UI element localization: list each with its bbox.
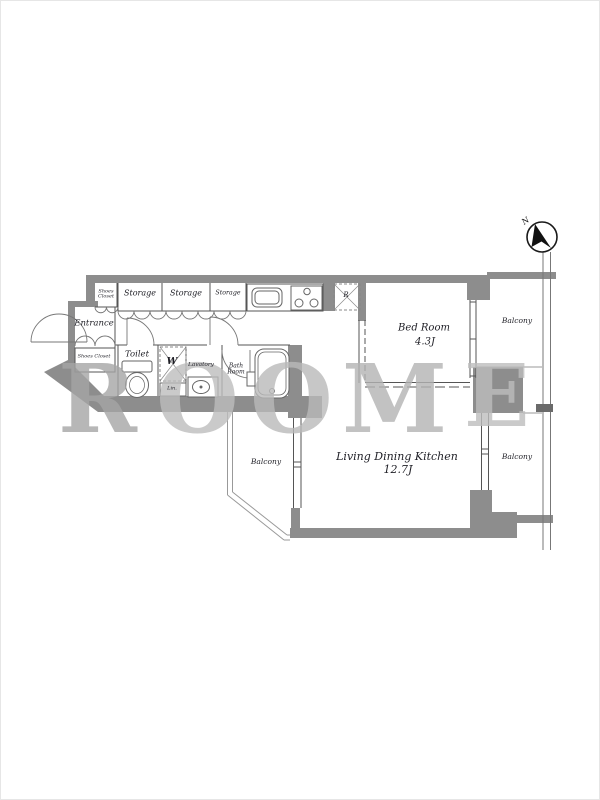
label-balcony-left: Balcony [251, 458, 281, 466]
label-lavatory: Lavatory [188, 362, 214, 368]
floor-plan-drawing: N R O O M E [0, 0, 600, 800]
watermark: R O O M E [58, 344, 530, 455]
boundary-lines [536, 252, 553, 550]
label-entrance: Entrance [74, 319, 114, 328]
lavatory-door-arc [210, 317, 238, 345]
svg-text:O: O [250, 344, 333, 455]
label-balcony-mid-right: Balcony [502, 453, 532, 461]
label-toilet: Toilet [125, 350, 149, 359]
label-washer: W [167, 357, 178, 367]
label-ldk: Living Dining Kitchen [336, 451, 458, 463]
label-balcony-top-right: Balcony [502, 317, 532, 325]
label-bed-room: Bed Room [398, 324, 450, 335]
label-shoes-closet-bottom: Shoes Closet [78, 354, 111, 359]
svg-text:E: E [464, 346, 530, 447]
label-storage-3: Storage [215, 291, 240, 298]
svg-text:R: R [58, 344, 138, 455]
label-storage-1: Storage [124, 290, 156, 299]
floor-plan: N R O O M E Shoes Closet Storage Storage… [0, 0, 600, 800]
label-bath-room: Bath Room [223, 364, 249, 377]
label-shoes-closet-top: Shoes Closet [94, 290, 118, 301]
svg-text:M: M [342, 344, 447, 455]
label-linen: Lin. [167, 386, 177, 391]
kitchen-sink-icon [252, 288, 282, 307]
label-ldk-size: 12.7J [384, 464, 413, 476]
compass-icon: N [519, 215, 557, 252]
compass-north-label: N [519, 215, 532, 228]
label-bed-room-size: 4.3J [415, 338, 435, 349]
stove-icon [291, 286, 322, 310]
label-refrigerator: R [343, 292, 348, 300]
storage-folding-doors [118, 311, 246, 319]
toilet-door-arc [127, 318, 154, 345]
label-storage-2: Storage [170, 290, 202, 299]
